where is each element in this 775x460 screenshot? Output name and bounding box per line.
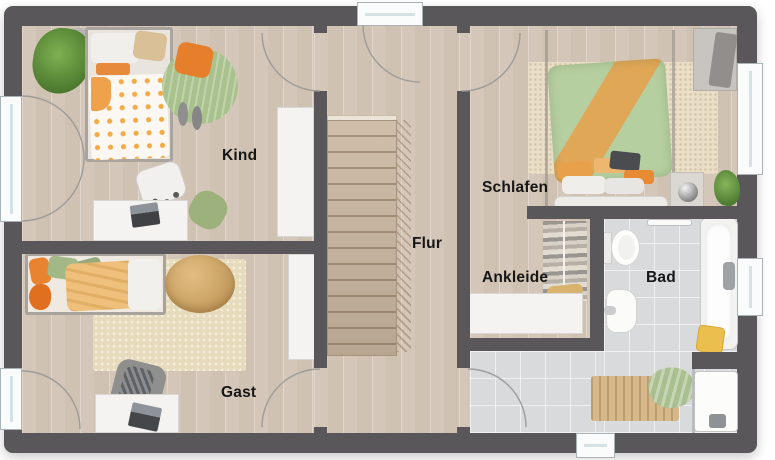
wall-kind-gast [22, 241, 327, 254]
floor-plan: Kind Gast Flur Schlafen Ankleide Bad [0, 0, 775, 460]
tub-faucet [723, 262, 735, 290]
bed-gast [25, 253, 166, 315]
room-label-gast: Gast [221, 384, 256, 402]
lamp-icon [678, 182, 698, 202]
wall-stub [457, 427, 470, 433]
draped-clothes [708, 32, 737, 89]
stool-yellow [695, 324, 725, 354]
window-schlafen-east [737, 63, 763, 175]
slippers [178, 102, 188, 126]
stairs-railing-hatch [397, 120, 411, 352]
duvet-orange [65, 260, 137, 312]
window-bad-south [576, 433, 615, 458]
clothes-rail [543, 221, 587, 301]
wall-flur-east [457, 91, 470, 368]
window-glass [10, 376, 13, 422]
wall-stub [314, 26, 327, 33]
shower-fixture [709, 414, 726, 428]
pillow-white [604, 178, 644, 194]
stairs [327, 120, 397, 356]
laptop-icon [130, 202, 161, 228]
pillow-orange [29, 284, 51, 310]
wardrobe-kind [277, 107, 314, 237]
pillow [132, 30, 168, 62]
window-bad-east [737, 258, 763, 316]
room-label-flur: Flur [412, 235, 442, 253]
window-flur-north [357, 2, 423, 26]
sink-icon [606, 289, 637, 333]
window-glass [584, 444, 607, 447]
sheet-white [128, 259, 161, 310]
nightstand [670, 172, 704, 210]
folded-blanket-dark [609, 150, 641, 171]
window-glass [749, 266, 752, 308]
wardrobe-schlafen [693, 28, 737, 91]
sink-faucet [604, 306, 616, 315]
shower-tray [694, 371, 738, 432]
wall-ankleide-bad [590, 219, 604, 338]
wall-schlafen-south [527, 206, 737, 219]
window-glass [365, 13, 415, 16]
toilet-seat [618, 235, 635, 260]
window-glass [10, 104, 13, 214]
shower-glass [692, 369, 695, 433]
room-label-schlafen: Schlafen [482, 179, 548, 197]
window-kind-west [0, 96, 22, 222]
wardrobe-gast [288, 254, 317, 360]
wall-shower [692, 352, 737, 369]
plant-icon [714, 170, 740, 206]
pillow [91, 33, 139, 63]
room-label-bad: Bad [646, 269, 676, 287]
room-bad-floor-lower [470, 351, 604, 433]
pillow-white [562, 176, 606, 194]
bed-kind [85, 27, 173, 162]
orange-cushion [96, 63, 130, 75]
room-label-kind: Kind [222, 147, 257, 165]
wall-stub [457, 26, 470, 33]
wall-stub [314, 427, 327, 433]
toilet-icon [611, 229, 640, 266]
room-label-ankleide: Ankleide [482, 269, 548, 287]
sideboard-ankleide [469, 293, 583, 334]
pouf-knit [165, 255, 235, 313]
bed-schlafen [545, 30, 675, 213]
wall-ankleide-south [470, 338, 604, 351]
towel-rail [647, 219, 692, 226]
window-gast-west [0, 368, 22, 430]
window-glass [749, 71, 752, 167]
wall-kind-gast-flur [314, 91, 327, 368]
